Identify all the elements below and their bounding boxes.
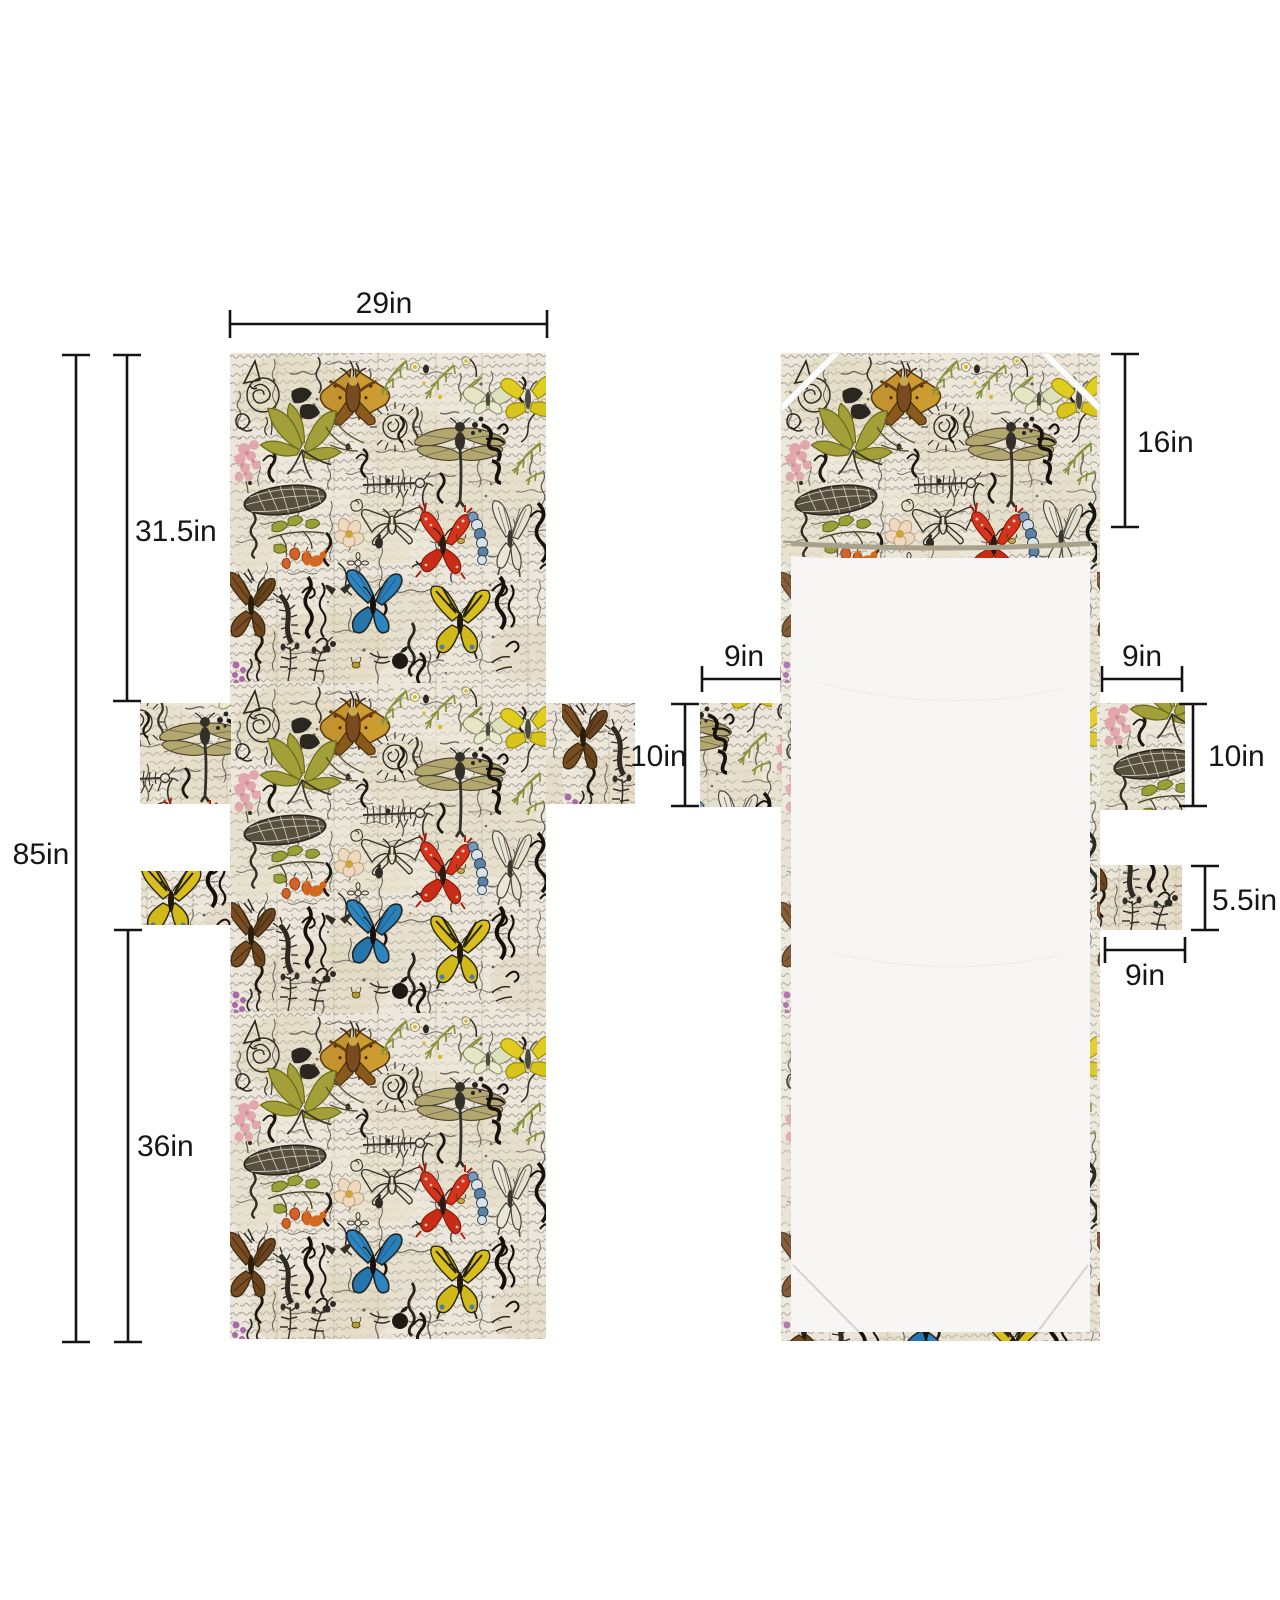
svg-text:9in: 9in: [1122, 640, 1162, 673]
svg-text:36in: 36in: [137, 1130, 194, 1163]
svg-text:10in: 10in: [630, 740, 687, 773]
svg-text:9in: 9in: [1125, 959, 1165, 992]
svg-text:5.5in: 5.5in: [1212, 884, 1277, 917]
svg-text:29in: 29in: [356, 287, 413, 320]
svg-text:16in: 16in: [1137, 426, 1194, 459]
svg-text:85in: 85in: [13, 838, 70, 871]
svg-text:10in: 10in: [1208, 740, 1265, 773]
svg-text:9in: 9in: [724, 640, 764, 673]
svg-text:31.5in: 31.5in: [135, 515, 217, 548]
